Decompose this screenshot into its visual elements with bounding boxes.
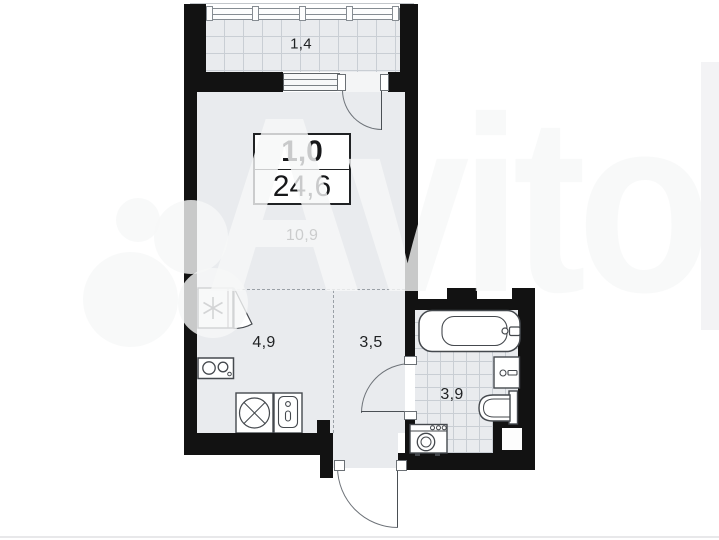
kitchen-sink-icon (273, 392, 304, 434)
wall (184, 70, 197, 455)
balcony-area-label: 1,4 (290, 36, 312, 53)
window-mullion (206, 6, 213, 21)
bathroom-door-leaf (361, 411, 410, 412)
page-bottom-line (0, 536, 719, 538)
window-mullion (252, 6, 259, 21)
toilet-icon (477, 389, 519, 427)
floor-plan-image: 1,0 24,6 1,4 10,9 4,9 3,5 3,9 Avito (0, 0, 719, 540)
wall (447, 288, 477, 299)
avito-logo-circle (116, 198, 160, 242)
wash-basin-icon (493, 356, 521, 390)
wall (184, 433, 330, 455)
living-room-window (283, 73, 340, 91)
wall (317, 420, 330, 433)
apartment-summary-box: 1,0 24,6 (253, 133, 351, 205)
wall (405, 64, 418, 310)
kitchen-area-label: 4,9 (252, 334, 275, 352)
bathroom-area-label: 3,9 (440, 386, 463, 404)
stove-icon (197, 357, 235, 380)
total-area-label: 24,6 (255, 170, 349, 204)
door-jamb (404, 356, 417, 365)
zone-divider-vertical (333, 290, 334, 433)
wall (184, 72, 283, 92)
door-jamb (380, 74, 389, 91)
balcony-parapet-line (190, 3, 414, 4)
entrance-door-leaf (397, 467, 398, 527)
entrance-door-swing-arc (337, 467, 398, 528)
watermark-edge-strip (701, 62, 719, 330)
avito-logo-circle (83, 252, 178, 347)
bathroom-washer-icon (409, 421, 449, 457)
hallway-area-label: 3,5 (359, 334, 382, 352)
bathtub-icon (418, 309, 522, 354)
rooms-count-label: 1,0 (255, 135, 349, 170)
duct-niche (502, 428, 522, 450)
washing-machine-icon (235, 392, 274, 434)
door-jamb (334, 460, 345, 471)
living-room-area-label: 10,9 (286, 227, 318, 245)
window-mullion (299, 6, 306, 21)
door-jamb (396, 460, 407, 471)
wall (405, 310, 415, 362)
door-jamb (337, 74, 346, 91)
wall (320, 433, 333, 478)
balcony-door-leaf (381, 90, 382, 130)
fridge-icon (197, 287, 254, 330)
door-jamb (404, 411, 417, 420)
window-mullion (346, 6, 353, 21)
window-mullion (392, 6, 399, 21)
